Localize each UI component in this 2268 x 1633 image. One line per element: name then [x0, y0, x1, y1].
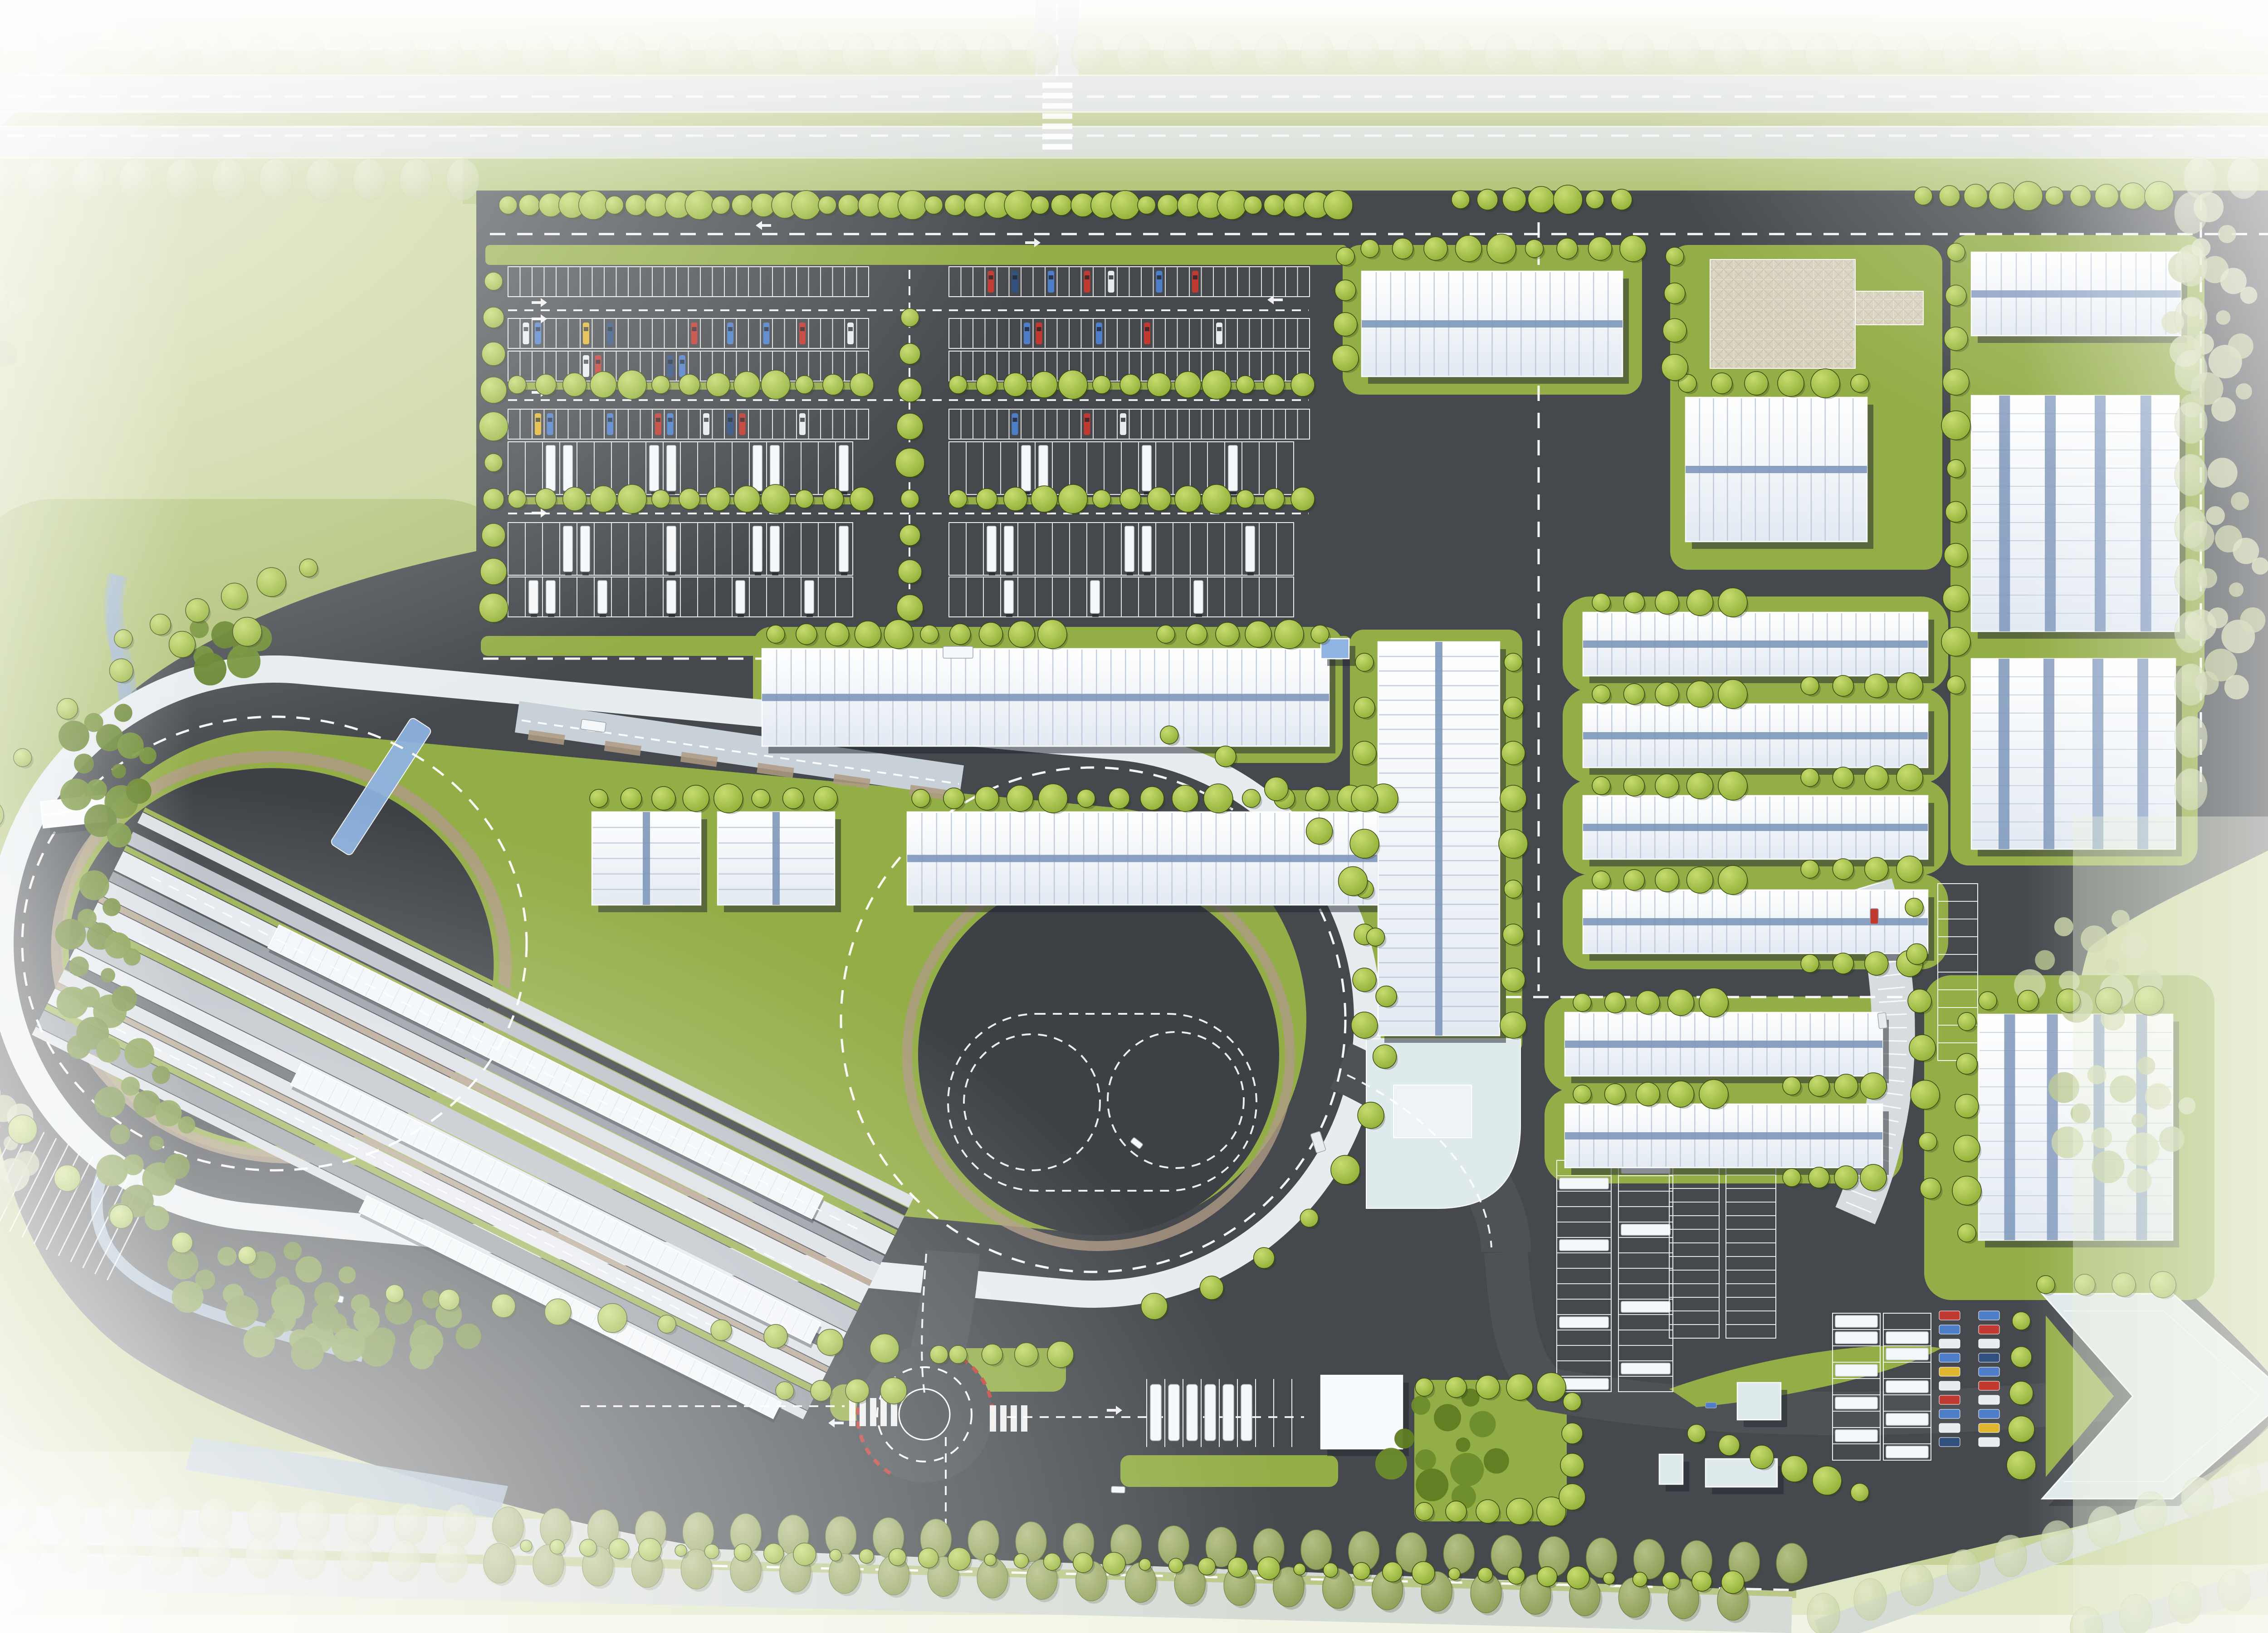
site-plan-rendering [0, 0, 2268, 1633]
fade-overlays [0, 0, 2268, 1633]
